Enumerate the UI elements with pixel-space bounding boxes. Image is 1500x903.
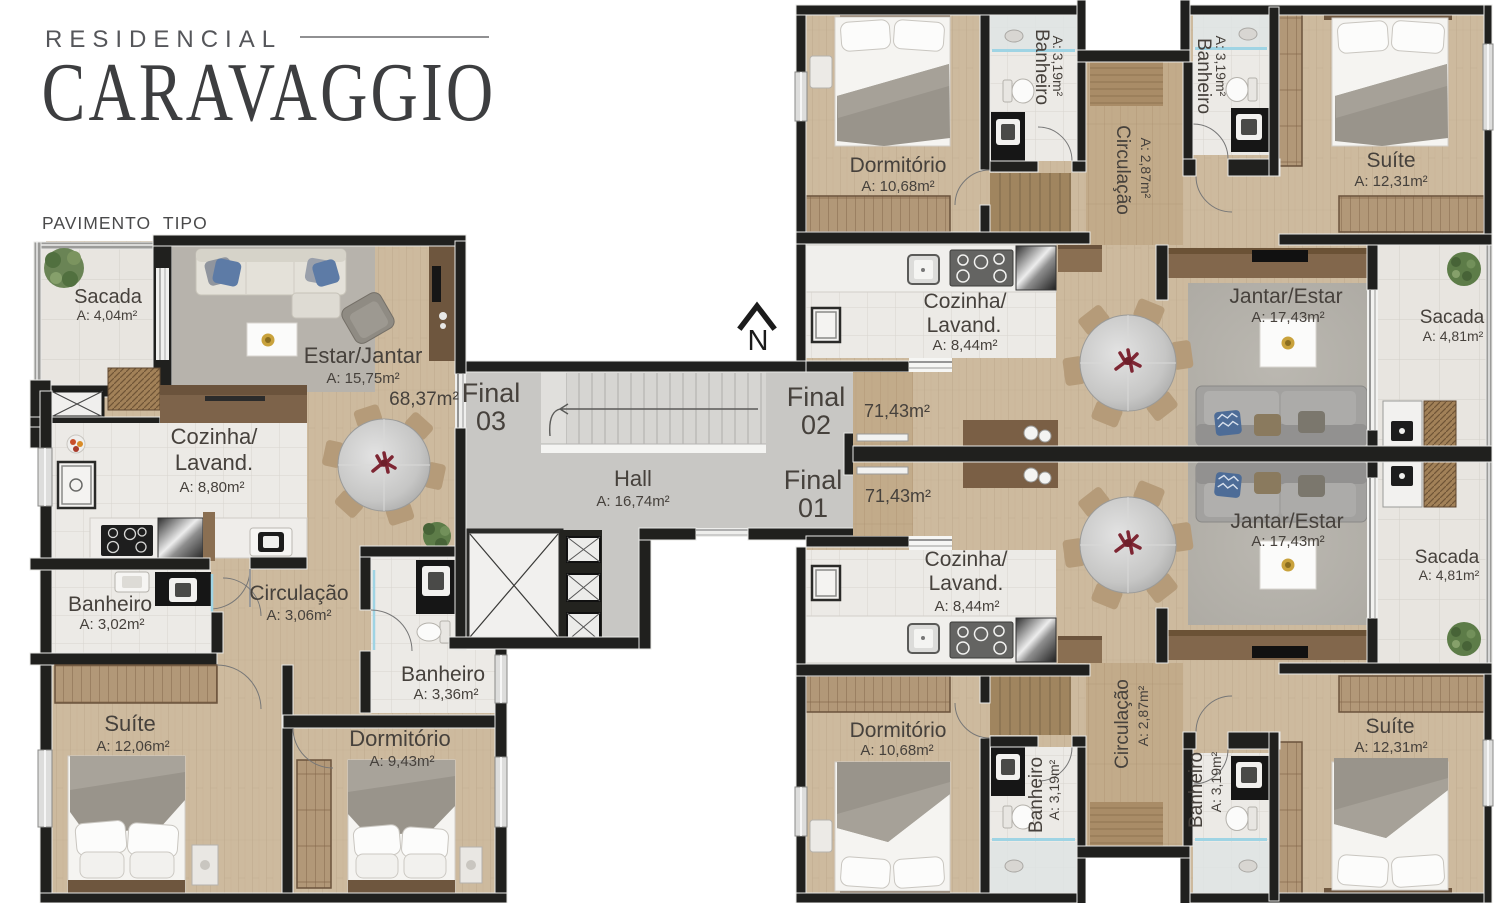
svg-text:71,43m²: 71,43m²: [864, 401, 930, 421]
svg-text:Lavand.: Lavand.: [929, 572, 1004, 595]
svg-text:Dormitório: Dormitório: [850, 154, 947, 177]
svg-text:A: 12,06m²: A: 12,06m²: [96, 738, 169, 755]
svg-text:Cozinha/: Cozinha/: [925, 548, 1008, 571]
svg-text:A: 9,43m²: A: 9,43m²: [369, 753, 434, 770]
svg-text:A: 3,19m²: A: 3,19m²: [1213, 36, 1229, 97]
svg-text:A: 10,68m²: A: 10,68m²: [860, 742, 933, 759]
svg-text:A: 12,31m²: A: 12,31m²: [1354, 173, 1427, 190]
svg-text:A: 3,36m²: A: 3,36m²: [413, 686, 478, 703]
svg-text:68,37m²: 68,37m²: [389, 389, 459, 410]
svg-text:Cozinha/: Cozinha/: [924, 290, 1007, 313]
svg-text:A: 3,06m²: A: 3,06m²: [266, 607, 331, 624]
svg-text:Circulação: Circulação: [1112, 679, 1133, 769]
svg-text:Sacada: Sacada: [1415, 547, 1480, 568]
svg-text:Circulação: Circulação: [249, 582, 348, 605]
svg-text:Estar/Jantar: Estar/Jantar: [304, 343, 423, 368]
svg-text:Lavand.: Lavand.: [175, 450, 253, 475]
svg-text:Banheiro: Banheiro: [401, 663, 485, 686]
svg-text:Jantar/Estar: Jantar/Estar: [1229, 285, 1342, 308]
svg-text:Final: Final: [784, 465, 843, 495]
svg-text:A: 4,81m²: A: 4,81m²: [1423, 328, 1484, 344]
svg-text:Sacada: Sacada: [74, 286, 143, 308]
svg-text:PAVIMENTO TIPO: PAVIMENTO TIPO: [42, 213, 208, 233]
svg-text:A: 8,80m²: A: 8,80m²: [179, 479, 244, 496]
svg-text:Banheiro: Banheiro: [1186, 752, 1207, 828]
svg-text:Jantar/Estar: Jantar/Estar: [1230, 510, 1343, 533]
svg-text:A: 3,19m²: A: 3,19m²: [1050, 36, 1066, 97]
svg-text:71,43m²: 71,43m²: [865, 486, 931, 506]
svg-text:Hall: Hall: [614, 466, 652, 491]
svg-text:A: 3,19m²: A: 3,19m²: [1046, 759, 1062, 820]
svg-text:Banheiro: Banheiro: [1026, 757, 1047, 833]
svg-text:A: 17,43m²: A: 17,43m²: [1251, 533, 1324, 550]
svg-text:Suíte: Suíte: [1366, 149, 1415, 172]
svg-text:A: 3,02m²: A: 3,02m²: [79, 616, 144, 633]
svg-text:02: 02: [801, 410, 831, 440]
svg-text:Circulação: Circulação: [1112, 125, 1133, 215]
svg-text:Final: Final: [462, 378, 521, 408]
svg-text:A: 8,44m²: A: 8,44m²: [934, 598, 999, 615]
svg-text:Suíte: Suíte: [1365, 715, 1414, 738]
svg-text:A: 16,74m²: A: 16,74m²: [596, 493, 669, 510]
svg-text:A: 10,68m²: A: 10,68m²: [861, 178, 934, 195]
svg-text:A: 8,44m²: A: 8,44m²: [932, 337, 997, 354]
svg-text:Banheiro: Banheiro: [68, 593, 152, 616]
svg-text:A: 17,43m²: A: 17,43m²: [1251, 309, 1324, 326]
svg-text:Sacada: Sacada: [1420, 307, 1485, 328]
svg-text:A: 12,31m²: A: 12,31m²: [1354, 739, 1427, 756]
svg-text:03: 03: [476, 406, 506, 436]
svg-text:Banheiro: Banheiro: [1031, 29, 1052, 105]
svg-text:N: N: [748, 325, 769, 357]
svg-text:Dormitório: Dormitório: [850, 719, 947, 742]
svg-text:Cozinha/: Cozinha/: [171, 424, 259, 449]
svg-text:A: 2,87m²: A: 2,87m²: [1135, 685, 1151, 746]
svg-text:Final: Final: [787, 382, 846, 412]
svg-text:A: 15,75m²: A: 15,75m²: [326, 370, 399, 387]
svg-text:Suíte: Suíte: [104, 711, 155, 736]
svg-text:Banheiro: Banheiro: [1193, 38, 1214, 114]
svg-text:Dormitório: Dormitório: [349, 726, 450, 751]
svg-text:Lavand.: Lavand.: [927, 314, 1002, 337]
svg-text:A: 2,87m²: A: 2,87m²: [1138, 138, 1154, 199]
svg-text:CARAVAGGIO: CARAVAGGIO: [42, 46, 497, 139]
svg-text:A: 3,19m²: A: 3,19m²: [1208, 751, 1224, 812]
svg-text:01: 01: [798, 493, 828, 523]
svg-text:A: 4,04m²: A: 4,04m²: [77, 307, 138, 323]
svg-text:A: 4,81m²: A: 4,81m²: [1419, 567, 1480, 583]
